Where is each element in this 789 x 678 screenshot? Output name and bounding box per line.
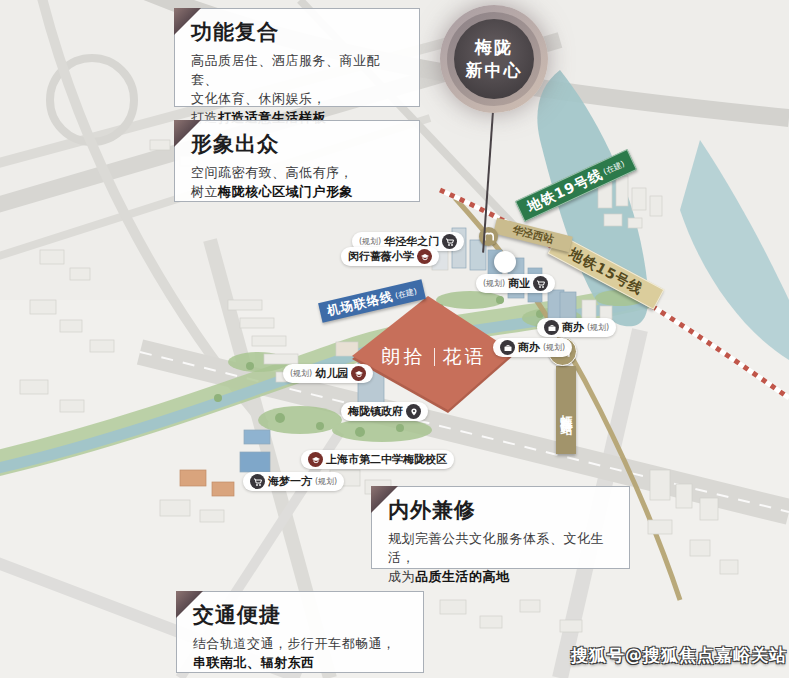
poi-office-lower: 商办 (规划) bbox=[493, 338, 572, 357]
airport-link-status: (在建) bbox=[394, 285, 418, 301]
hongmei-south-road-station-banner: 虹梅南路站 bbox=[556, 366, 576, 454]
shopping-cart-icon bbox=[250, 474, 265, 489]
poi-no2-middle-school: 上海市第二中学梅陇校区 bbox=[301, 450, 454, 469]
text-normal: 文化体育、休闲娱乐， bbox=[191, 91, 326, 106]
callout-function-mix: 功能复合 高品质居住、酒店服务、商业配套、 文化体育、休闲娱乐， 打造打造适意生… bbox=[174, 8, 420, 107]
poi-meilong-town-government: 梅陇镇政府 bbox=[341, 402, 428, 421]
briefcase-icon bbox=[500, 340, 515, 355]
callout-title: 功能复合 bbox=[191, 18, 405, 46]
poi-kindergarten: (规划) 幼儿园 bbox=[283, 364, 373, 383]
badge-ring: 梅陇 新中心 bbox=[447, 12, 541, 106]
poi-planned-tag: (规划) bbox=[290, 368, 312, 379]
poi-planned-tag: (规划) bbox=[543, 342, 565, 353]
callout-outstanding-image: 形象出众 空间疏密有致、高低有序， 树立梅陇核心区域门户形象 bbox=[174, 120, 420, 202]
project-name-left: 朗拾 bbox=[382, 344, 426, 370]
badge-line2: 新中心 bbox=[466, 59, 523, 82]
poi-office-upper: 商办 (规划) bbox=[537, 318, 616, 337]
project-name: 朗拾 花语 bbox=[358, 344, 510, 370]
poi-planned-tag: (规划) bbox=[483, 278, 505, 289]
badge-face: 梅陇 新中心 bbox=[454, 19, 534, 99]
poi-planned-tag: (规划) bbox=[359, 236, 381, 247]
callout-line: 文化体育、休闲娱乐， bbox=[191, 89, 405, 108]
poi-planned-tag: (规划) bbox=[587, 322, 609, 333]
callout-title: 形象出众 bbox=[191, 130, 405, 158]
callout-line: 结合轨道交通，步行开车都畅通， bbox=[193, 634, 409, 653]
poi-label: 商办 bbox=[562, 320, 584, 335]
poi-qiangwei-primary-school: 闵行蔷薇小学 bbox=[341, 247, 439, 266]
text-normal: 结合轨道交通，步行开车都畅通， bbox=[193, 636, 396, 651]
callout-line: 成为品质生活的高地 bbox=[388, 567, 615, 586]
text-normal: 规划完善公共文化服务体系、文化生活， bbox=[388, 531, 604, 565]
poi-label: 商业 bbox=[508, 276, 530, 291]
project-name-right: 花语 bbox=[443, 344, 487, 370]
callout-line: 树立梅陇核心区域门户形象 bbox=[191, 182, 405, 201]
location-pin-icon bbox=[406, 404, 421, 419]
school-icon bbox=[351, 366, 366, 381]
callout-title: 内外兼修 bbox=[388, 496, 615, 524]
poi-label: 闵行蔷薇小学 bbox=[348, 249, 414, 264]
meilong-new-center-badge: 梅陇 新中心 bbox=[440, 5, 548, 113]
callout-line: 规划完善公共文化服务体系、文化生活， bbox=[388, 529, 615, 567]
text-bold: 串联南北、辐射东西 bbox=[193, 655, 315, 670]
poi-label: 海梦一方 bbox=[268, 474, 312, 489]
shopping-cart-icon bbox=[533, 276, 548, 291]
callout-line: 空间疏密有致、高低有序， bbox=[191, 163, 405, 182]
text-bold: 梅陇核心区域门户形象 bbox=[218, 184, 353, 199]
poi-commercial: (规划) 商业 bbox=[476, 274, 555, 293]
poi-planned-tag: (规划) bbox=[315, 476, 337, 487]
text-normal: 空间疏密有致、高低有序， bbox=[191, 165, 353, 180]
poi-label: 上海市第二中学梅陇校区 bbox=[326, 452, 447, 467]
project-name-divider bbox=[434, 348, 435, 366]
badge-line1: 梅陇 bbox=[475, 36, 513, 59]
shopping-cart-icon bbox=[442, 234, 457, 249]
callout-convenient-transport: 交通便捷 结合轨道交通，步行开车都畅通， 串联南北、辐射东西 bbox=[176, 591, 424, 673]
briefcase-icon bbox=[544, 320, 559, 335]
masterplan-map-image: 朗拾 花语 地铁19号线 (在建) 地铁15号线 机场联络线 (在建) 华泾西站… bbox=[0, 0, 789, 678]
callout-inside-outside: 内外兼修 规划完善公共文化服务体系、文化生活， 成为品质生活的高地 bbox=[371, 486, 630, 569]
poi-label: 梅陇镇政府 bbox=[348, 404, 403, 419]
metro-line19-status: (在建) bbox=[601, 158, 626, 177]
badge-pointer-dot bbox=[494, 251, 516, 273]
text-normal: 树立 bbox=[191, 184, 218, 199]
callout-line: 串联南北、辐射东西 bbox=[193, 653, 409, 672]
text-normal: 成为 bbox=[388, 569, 415, 584]
callout-title: 交通便捷 bbox=[193, 601, 409, 629]
school-icon bbox=[417, 249, 432, 264]
poi-label: 幼儿园 bbox=[315, 366, 348, 381]
text-normal: 高品质居住、酒店服务、商业配套、 bbox=[191, 53, 380, 87]
school-icon bbox=[308, 452, 323, 467]
poi-label: 商办 bbox=[518, 340, 540, 355]
poi-haimeng-yifang: 海梦一方 (规划) bbox=[243, 472, 344, 491]
hongmei-station-label: 虹梅南路站 bbox=[558, 405, 575, 415]
watermark: 搜狐号@搜狐焦点嘉峪关站 bbox=[571, 644, 787, 667]
text-bold: 品质生活的高地 bbox=[415, 569, 510, 584]
callout-line: 高品质居住、酒店服务、商业配套、 bbox=[191, 51, 405, 89]
